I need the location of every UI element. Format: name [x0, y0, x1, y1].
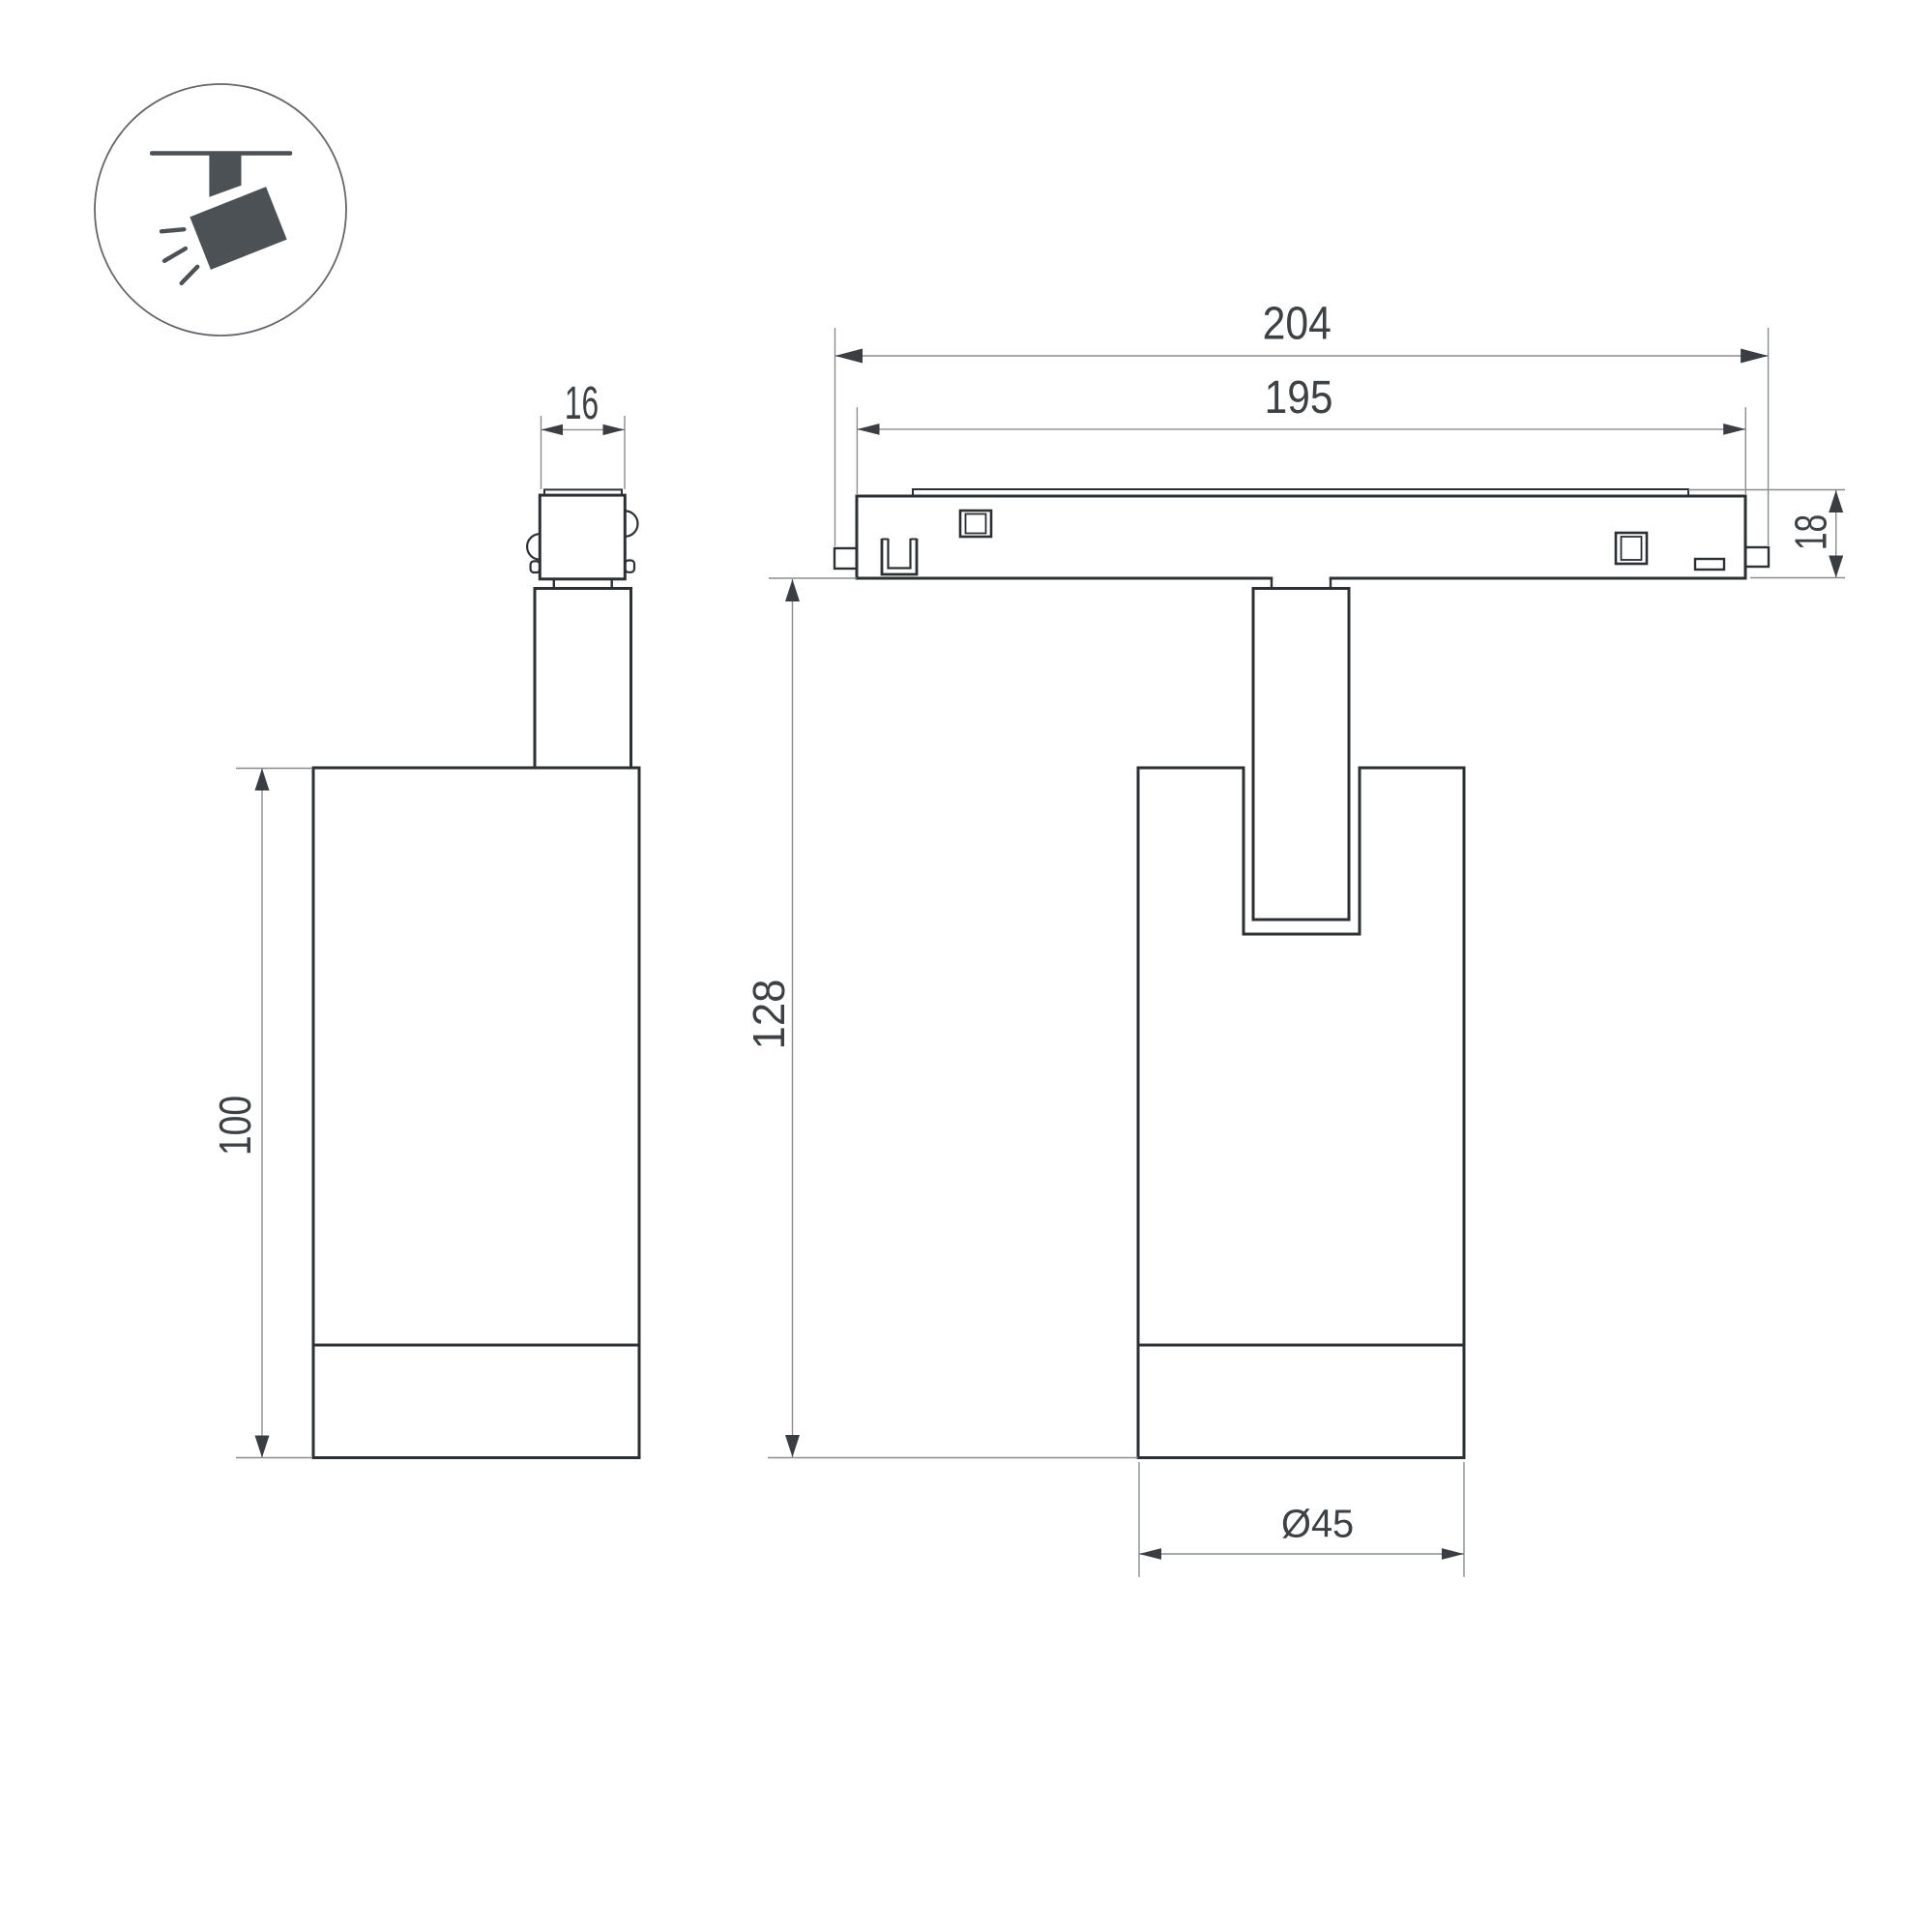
svg-text:16: 16 — [565, 376, 599, 428]
svg-text:128: 128 — [744, 980, 794, 1050]
svg-text:195: 195 — [1265, 371, 1333, 424]
svg-text:18: 18 — [1786, 514, 1835, 550]
svg-text:100: 100 — [210, 1096, 260, 1156]
svg-text:204: 204 — [1263, 297, 1332, 349]
svg-text:Ø45: Ø45 — [1281, 1501, 1354, 1546]
